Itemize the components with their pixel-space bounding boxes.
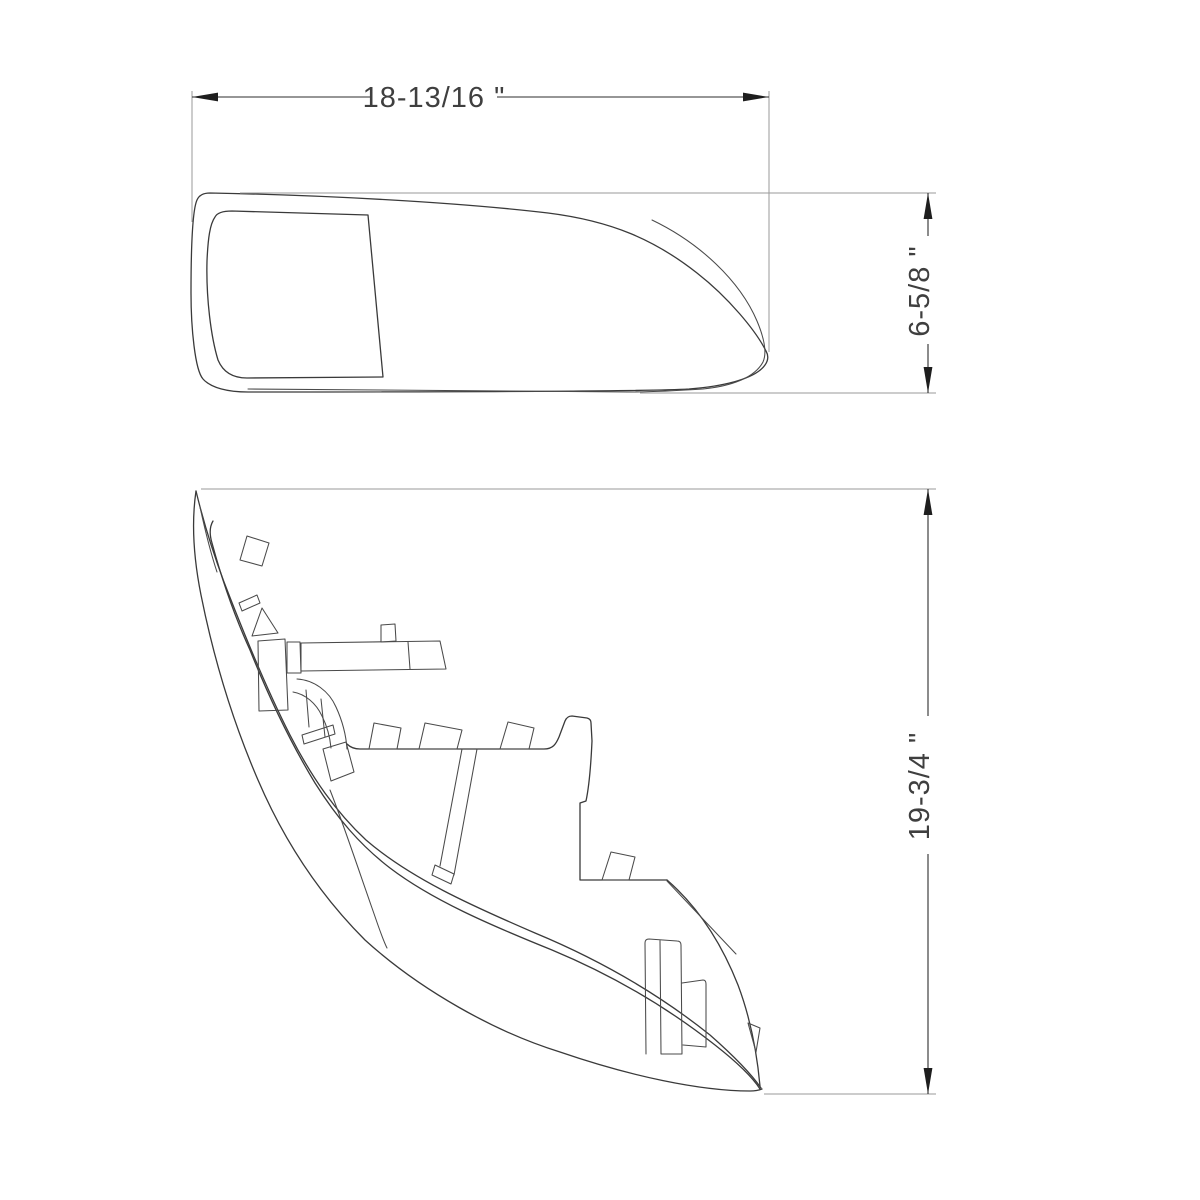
horn-quad [323,742,354,781]
height-arrow-up [924,193,933,219]
horn-rib-1 [306,690,309,727]
strut-foot [432,865,454,884]
side-view [194,491,762,1091]
lens-rim-lower-curve [210,521,760,1089]
shelf-tab [602,852,635,880]
dimension-height: 6-5/8 " [240,193,936,393]
width-arrow-right [743,93,769,102]
plate-tab-2 [419,723,462,749]
bracket-divider [408,642,410,669]
top-view-inner-edge [628,220,765,392]
bracket-top-tab [381,624,396,642]
tab-small-mid [287,642,301,673]
plate-edge [347,716,667,880]
drawing-sheet: 18-13/16 " 6-5/8 " 19-3/4 " [0,0,1200,1200]
horn-inner-curve [293,692,331,748]
plate-tab-1 [369,723,401,749]
housing-chamfer-line [667,881,736,954]
strut-lines [440,749,477,875]
length-arrow-up [924,489,933,515]
lens-window-outline [207,211,383,378]
lens-rim-upper-curve [196,491,761,1088]
post-outline [645,939,682,1054]
height-dim-label: 6-5/8 " [904,245,936,336]
post-side-tab [682,980,706,1047]
bowl-mid-curve [330,790,387,948]
dimension-length: 19-3/4 " [201,489,936,1094]
drawing-canvas: 18-13/16 " 6-5/8 " 19-3/4 " [0,0,1200,1200]
width-dim-label: 18-13/16 " [363,82,506,114]
dimension-width: 18-13/16 " [192,82,769,352]
top-view-outline [191,193,768,392]
horn-rib-2 [321,699,325,737]
width-arrow-left [192,93,218,102]
height-arrow-down [924,367,933,393]
tip-inner-line [200,507,217,572]
top-view [191,193,768,392]
length-dim-label: 19-3/4 " [904,732,936,841]
length-arrow-down [924,1068,933,1094]
plate-tab-3 [500,722,534,749]
tab-square-upper [240,536,269,566]
bracket-long-rect [301,641,446,671]
tab-triangle [252,608,278,636]
tab-thin-bar [239,595,260,611]
tip-wedge-tab [748,1023,760,1052]
side-outer-curve [194,491,762,1091]
